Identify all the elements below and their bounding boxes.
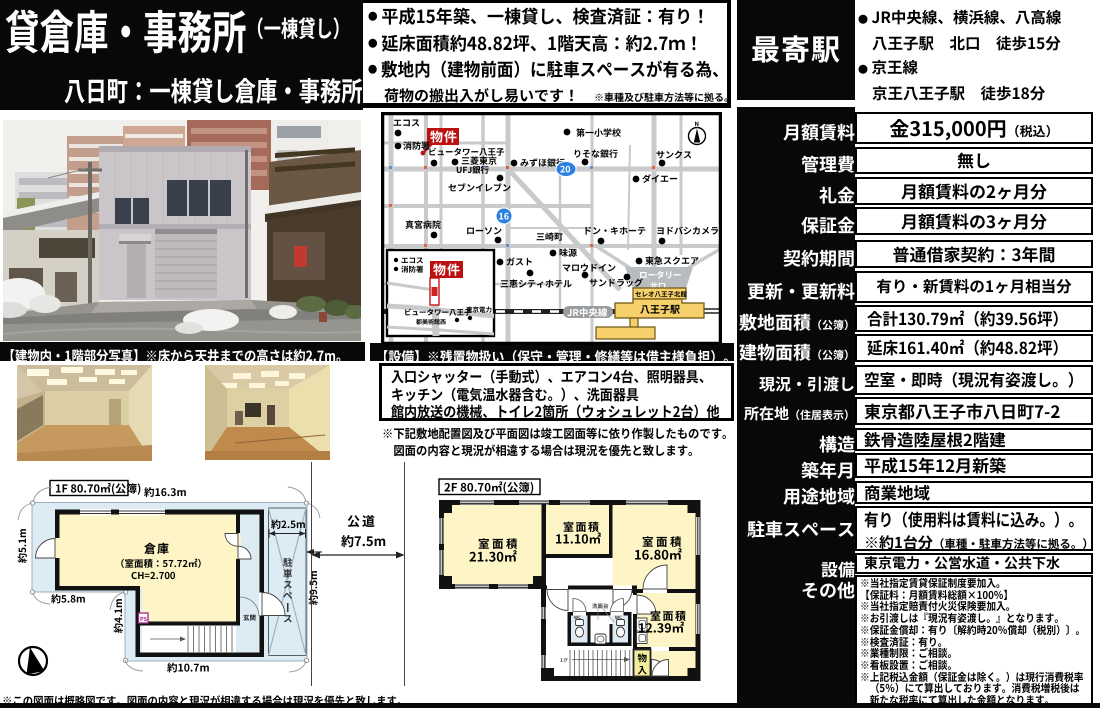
svg-text:約7.5m: 約7.5m bbox=[341, 531, 386, 550]
svg-text:真宮病院: 真宮病院 bbox=[405, 218, 441, 231]
svg-text:1グ: 1グ bbox=[560, 657, 568, 664]
svg-text:16.80㎡: 16.80㎡ bbox=[634, 545, 682, 564]
svg-text:約16.3m: 約16.3m bbox=[144, 485, 187, 500]
svg-text:八王子駅: 八王子駅 bbox=[640, 301, 680, 316]
svg-text:マロウドイン: マロウドイン bbox=[562, 261, 616, 274]
svg-text:入: 入 bbox=[638, 663, 648, 677]
svg-text:東急スクエア: 東急スクエア bbox=[645, 254, 699, 267]
svg-text:消防署: 消防署 bbox=[403, 139, 430, 152]
svg-text:公道: 公道 bbox=[347, 511, 377, 530]
svg-text:サンクス: サンクス bbox=[656, 148, 692, 161]
svg-text:21.30㎡: 21.30㎡ bbox=[469, 547, 517, 566]
svg-text:サンドラッグ: サンドラッグ bbox=[589, 276, 643, 289]
svg-text:11.10㎡: 11.10㎡ bbox=[555, 529, 602, 548]
svg-text:セブンイレブン: セブンイレブン bbox=[448, 181, 511, 194]
svg-text:約9.5m: 約9.5m bbox=[305, 570, 320, 605]
svg-text:CH=2.700: CH=2.700 bbox=[131, 568, 176, 582]
svg-text:PS: PS bbox=[140, 615, 148, 623]
svg-text:三崎町: 三崎町 bbox=[536, 230, 563, 243]
svg-text:WC: WC bbox=[574, 615, 581, 621]
svg-text:ドン・キホーテ: ドン・キホーテ bbox=[583, 224, 646, 237]
svg-text:第一小学校: 第一小学校 bbox=[576, 126, 621, 139]
svg-text:12.39㎡: 12.39㎡ bbox=[638, 618, 685, 637]
svg-text:ローソン: ローソン bbox=[466, 224, 502, 237]
svg-text:三恵シティホテル: 三恵シティホテル bbox=[500, 277, 572, 290]
svg-text:洗面台: 洗面台 bbox=[592, 602, 609, 610]
svg-text:セレオ八王子北館: セレオ八王子北館 bbox=[635, 289, 688, 299]
svg-text:約5.1m: 約5.1m bbox=[14, 528, 29, 563]
svg-text:UFJ銀行: UFJ銀行 bbox=[456, 164, 490, 176]
svg-text:約10.7m: 約10.7m bbox=[167, 661, 210, 676]
svg-text:東京電力: 東京電力 bbox=[466, 304, 492, 314]
svg-text:ダイエー: ダイエー bbox=[642, 172, 678, 185]
svg-text:消防署: 消防署 bbox=[401, 264, 424, 275]
svg-text:WC: WC bbox=[615, 615, 622, 621]
svg-text:約4.1m: 約4.1m bbox=[110, 598, 125, 633]
svg-text:倉庫: 倉庫 bbox=[144, 540, 170, 557]
svg-text:ペ: ペ bbox=[283, 588, 293, 602]
svg-text:りそな銀行: りそな銀行 bbox=[573, 147, 618, 160]
svg-text:玄関: 玄関 bbox=[243, 612, 257, 622]
svg-text:1F 80.70㎡(公簿): 1F 80.70㎡(公簿) bbox=[55, 481, 141, 497]
svg-text:ガスト: ガスト bbox=[506, 255, 533, 268]
svg-text:JR中央線: JR中央線 bbox=[567, 305, 608, 319]
svg-text:都美術館西: 都美術館西 bbox=[416, 317, 446, 326]
svg-text:物件: 物件 bbox=[430, 127, 458, 146]
svg-text:約5.8m: 約5.8m bbox=[51, 591, 86, 606]
svg-text:2F 80.70㎡(公簿): 2F 80.70㎡(公簿) bbox=[444, 480, 534, 496]
svg-text:ロータリー: ロータリー bbox=[639, 269, 682, 281]
svg-text:16: 16 bbox=[499, 210, 510, 223]
svg-text:ヨドバシカメラ: ヨドバシカメラ bbox=[656, 224, 719, 237]
svg-text:味源: 味源 bbox=[559, 246, 577, 259]
svg-text:約2.5m: 約2.5m bbox=[271, 516, 306, 531]
svg-text:物件: 物件 bbox=[433, 260, 461, 279]
svg-text:N: N bbox=[695, 119, 700, 128]
svg-text:20: 20 bbox=[560, 163, 571, 176]
svg-text:エコス: エコス bbox=[393, 116, 420, 129]
